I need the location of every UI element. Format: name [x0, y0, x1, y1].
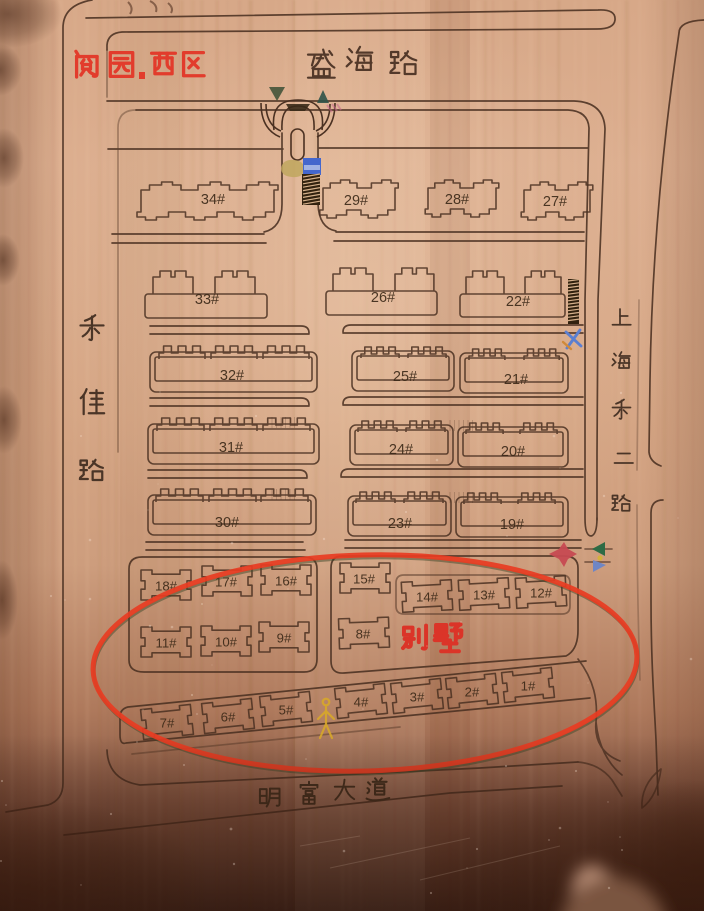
svg-text:28#: 28# — [445, 192, 469, 208]
svg-text:13#: 13# — [473, 588, 496, 603]
svg-text:32#: 32# — [220, 368, 244, 384]
svg-text:22#: 22# — [506, 294, 530, 310]
svg-text:29#: 29# — [344, 193, 368, 209]
svg-text:8#: 8# — [356, 627, 371, 642]
svg-text:15#: 15# — [353, 572, 376, 587]
svg-text:19#: 19# — [500, 517, 524, 533]
svg-text:23#: 23# — [388, 516, 412, 532]
svg-text:7#: 7# — [160, 716, 175, 731]
svg-text:6#: 6# — [221, 710, 236, 725]
svg-text:10#: 10# — [215, 635, 238, 650]
svg-text:27#: 27# — [543, 194, 567, 210]
svg-text:25#: 25# — [393, 369, 417, 385]
svg-text:24#: 24# — [389, 442, 413, 458]
svg-text:9#: 9# — [277, 631, 292, 646]
svg-text:2#: 2# — [465, 685, 480, 700]
svg-text:33#: 33# — [195, 292, 219, 308]
svg-text:5#: 5# — [279, 703, 294, 718]
svg-text:14#: 14# — [416, 590, 439, 605]
svg-text:4#: 4# — [354, 695, 369, 710]
svg-text:12#: 12# — [530, 586, 553, 601]
svg-text:34#: 34# — [201, 192, 225, 208]
svg-text:3#: 3# — [410, 690, 425, 705]
svg-text:20#: 20# — [501, 444, 525, 460]
svg-text:30#: 30# — [215, 515, 239, 531]
svg-text:26#: 26# — [371, 290, 395, 306]
svg-text:16#: 16# — [275, 574, 298, 589]
svg-text:1#: 1# — [521, 679, 536, 694]
svg-text:21#: 21# — [504, 372, 528, 388]
svg-text:11#: 11# — [155, 636, 177, 651]
svg-text:31#: 31# — [219, 440, 243, 456]
